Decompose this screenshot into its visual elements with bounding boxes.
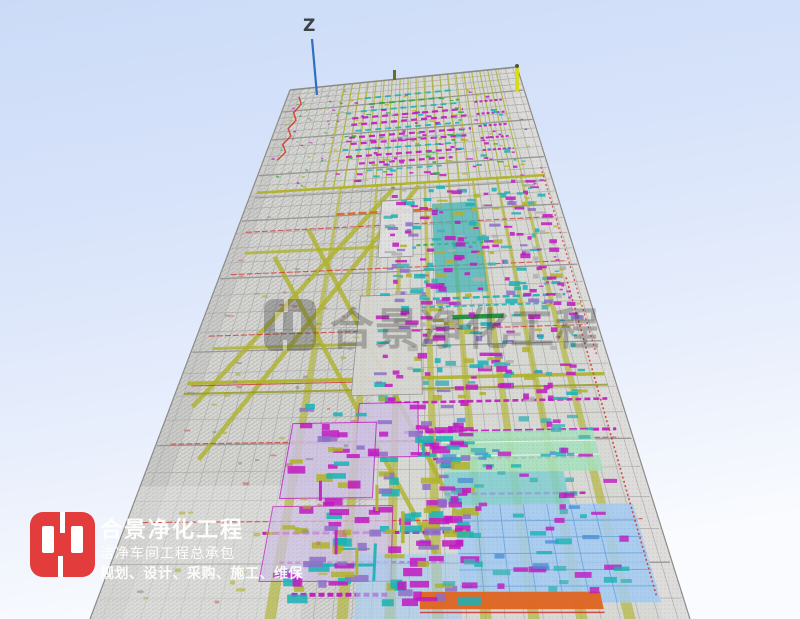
- watermark-text: 合景净化工程: [330, 304, 600, 355]
- z-axis-label: Z: [303, 16, 315, 36]
- model-viewport[interactable]: Z 合景净化工程 合景净化工程 洁净车间工程总承包 规划、设计、采购、施: [0, 0, 800, 619]
- logo-mark: [30, 512, 95, 577]
- logo-subtitle: 洁净车间工程总承包: [100, 545, 235, 562]
- logo-title: 合景净化工程: [100, 517, 244, 543]
- model-render: Z 合景净化工程 合景净化工程 洁净车间工程总承包 规划、设计、采购、施: [0, 0, 800, 619]
- watermark-logo-icon: [264, 299, 316, 351]
- logo-services: 规划、设计、采购、施工、维保: [100, 565, 303, 582]
